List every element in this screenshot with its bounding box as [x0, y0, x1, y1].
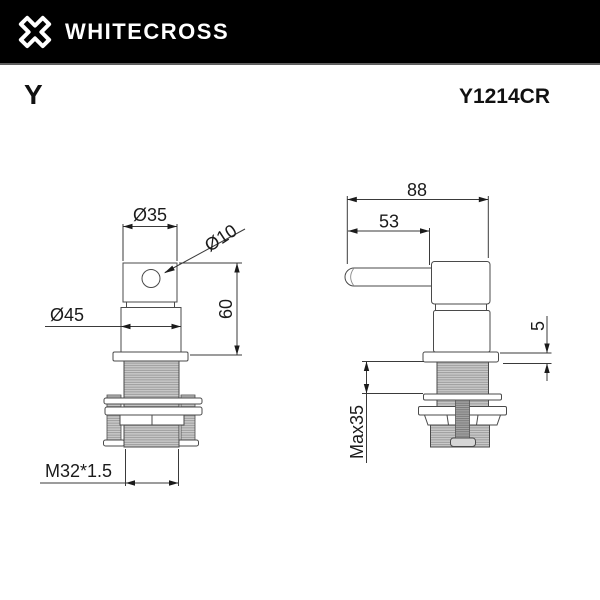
side-valve-neck — [436, 304, 487, 311]
side-view: 88 53 5 — [345, 180, 552, 463]
front-view: Ø35 Ø10 Ø45 60 — [40, 205, 245, 486]
dim-h60: 60 — [179, 263, 242, 355]
base-plate — [113, 352, 188, 361]
valve-flange-cylinder — [121, 308, 181, 353]
dim-label-dia45: Ø45 — [50, 305, 84, 325]
dim-t5: 5 — [500, 316, 552, 381]
fixing-screw-shaft — [456, 400, 470, 438]
dim-label-max35: Max35 — [347, 405, 367, 459]
side-valve-lower-body — [434, 311, 491, 353]
valve-neck — [127, 302, 175, 308]
fixing-screw-head — [451, 438, 476, 447]
brand-header: WHITECROSS — [0, 0, 600, 65]
product-series: Y — [24, 79, 43, 111]
whitecross-x-logo — [14, 11, 56, 53]
dim-max35: Max35 — [347, 362, 424, 464]
right-screw-foot — [178, 440, 199, 446]
dim-m32: M32*1.5 — [40, 449, 179, 486]
side-base-plate — [423, 352, 499, 362]
dim-label-w53: 53 — [379, 212, 399, 232]
side-valve-body — [432, 262, 491, 305]
dim-label-m32: M32*1.5 — [45, 461, 112, 481]
dim-label-h60: 60 — [216, 299, 236, 319]
product-model: Y1214CR — [459, 85, 550, 109]
handle-mount-hole — [142, 270, 160, 288]
dim-label-dia35: Ø35 — [133, 205, 167, 225]
dim-w53: 53 — [348, 212, 430, 266]
front-lower-thread — [124, 425, 179, 447]
dim-label-t5: 5 — [528, 321, 548, 331]
dim-w88: 88 — [347, 180, 488, 264]
lever-handle — [345, 268, 434, 286]
front-washer — [104, 398, 202, 404]
dim-label-dia10: Ø10 — [201, 220, 240, 255]
front-nut — [105, 407, 202, 415]
left-screw-foot — [104, 440, 125, 446]
dim-dia35: Ø35 — [123, 205, 177, 261]
dim-label-w88: 88 — [407, 180, 427, 200]
side-washer — [424, 394, 502, 400]
brand-name: WHITECROSS — [65, 19, 229, 45]
